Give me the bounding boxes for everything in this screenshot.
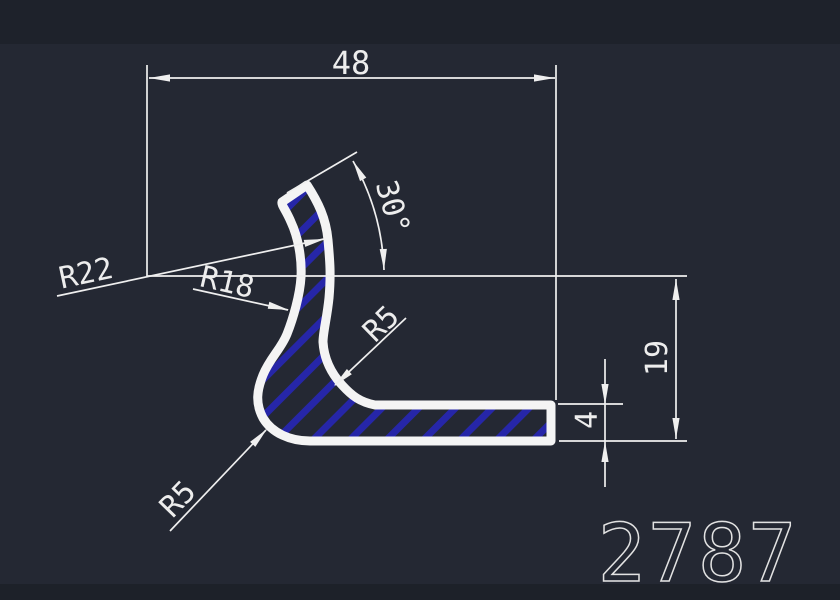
dim-thickness-text: 4 — [570, 411, 605, 429]
viewport-top-strip — [0, 0, 840, 44]
dim-height-text: 19 — [640, 340, 675, 376]
cad-viewport[interactable]: 48 30° R22 R18 R5 R5 19 4 — [0, 0, 840, 600]
part-number-text: 2787 — [598, 507, 799, 600]
dim-width-text: 48 — [332, 44, 371, 82]
drawing-canvas: 48 30° R22 R18 R5 R5 19 4 — [0, 0, 840, 600]
